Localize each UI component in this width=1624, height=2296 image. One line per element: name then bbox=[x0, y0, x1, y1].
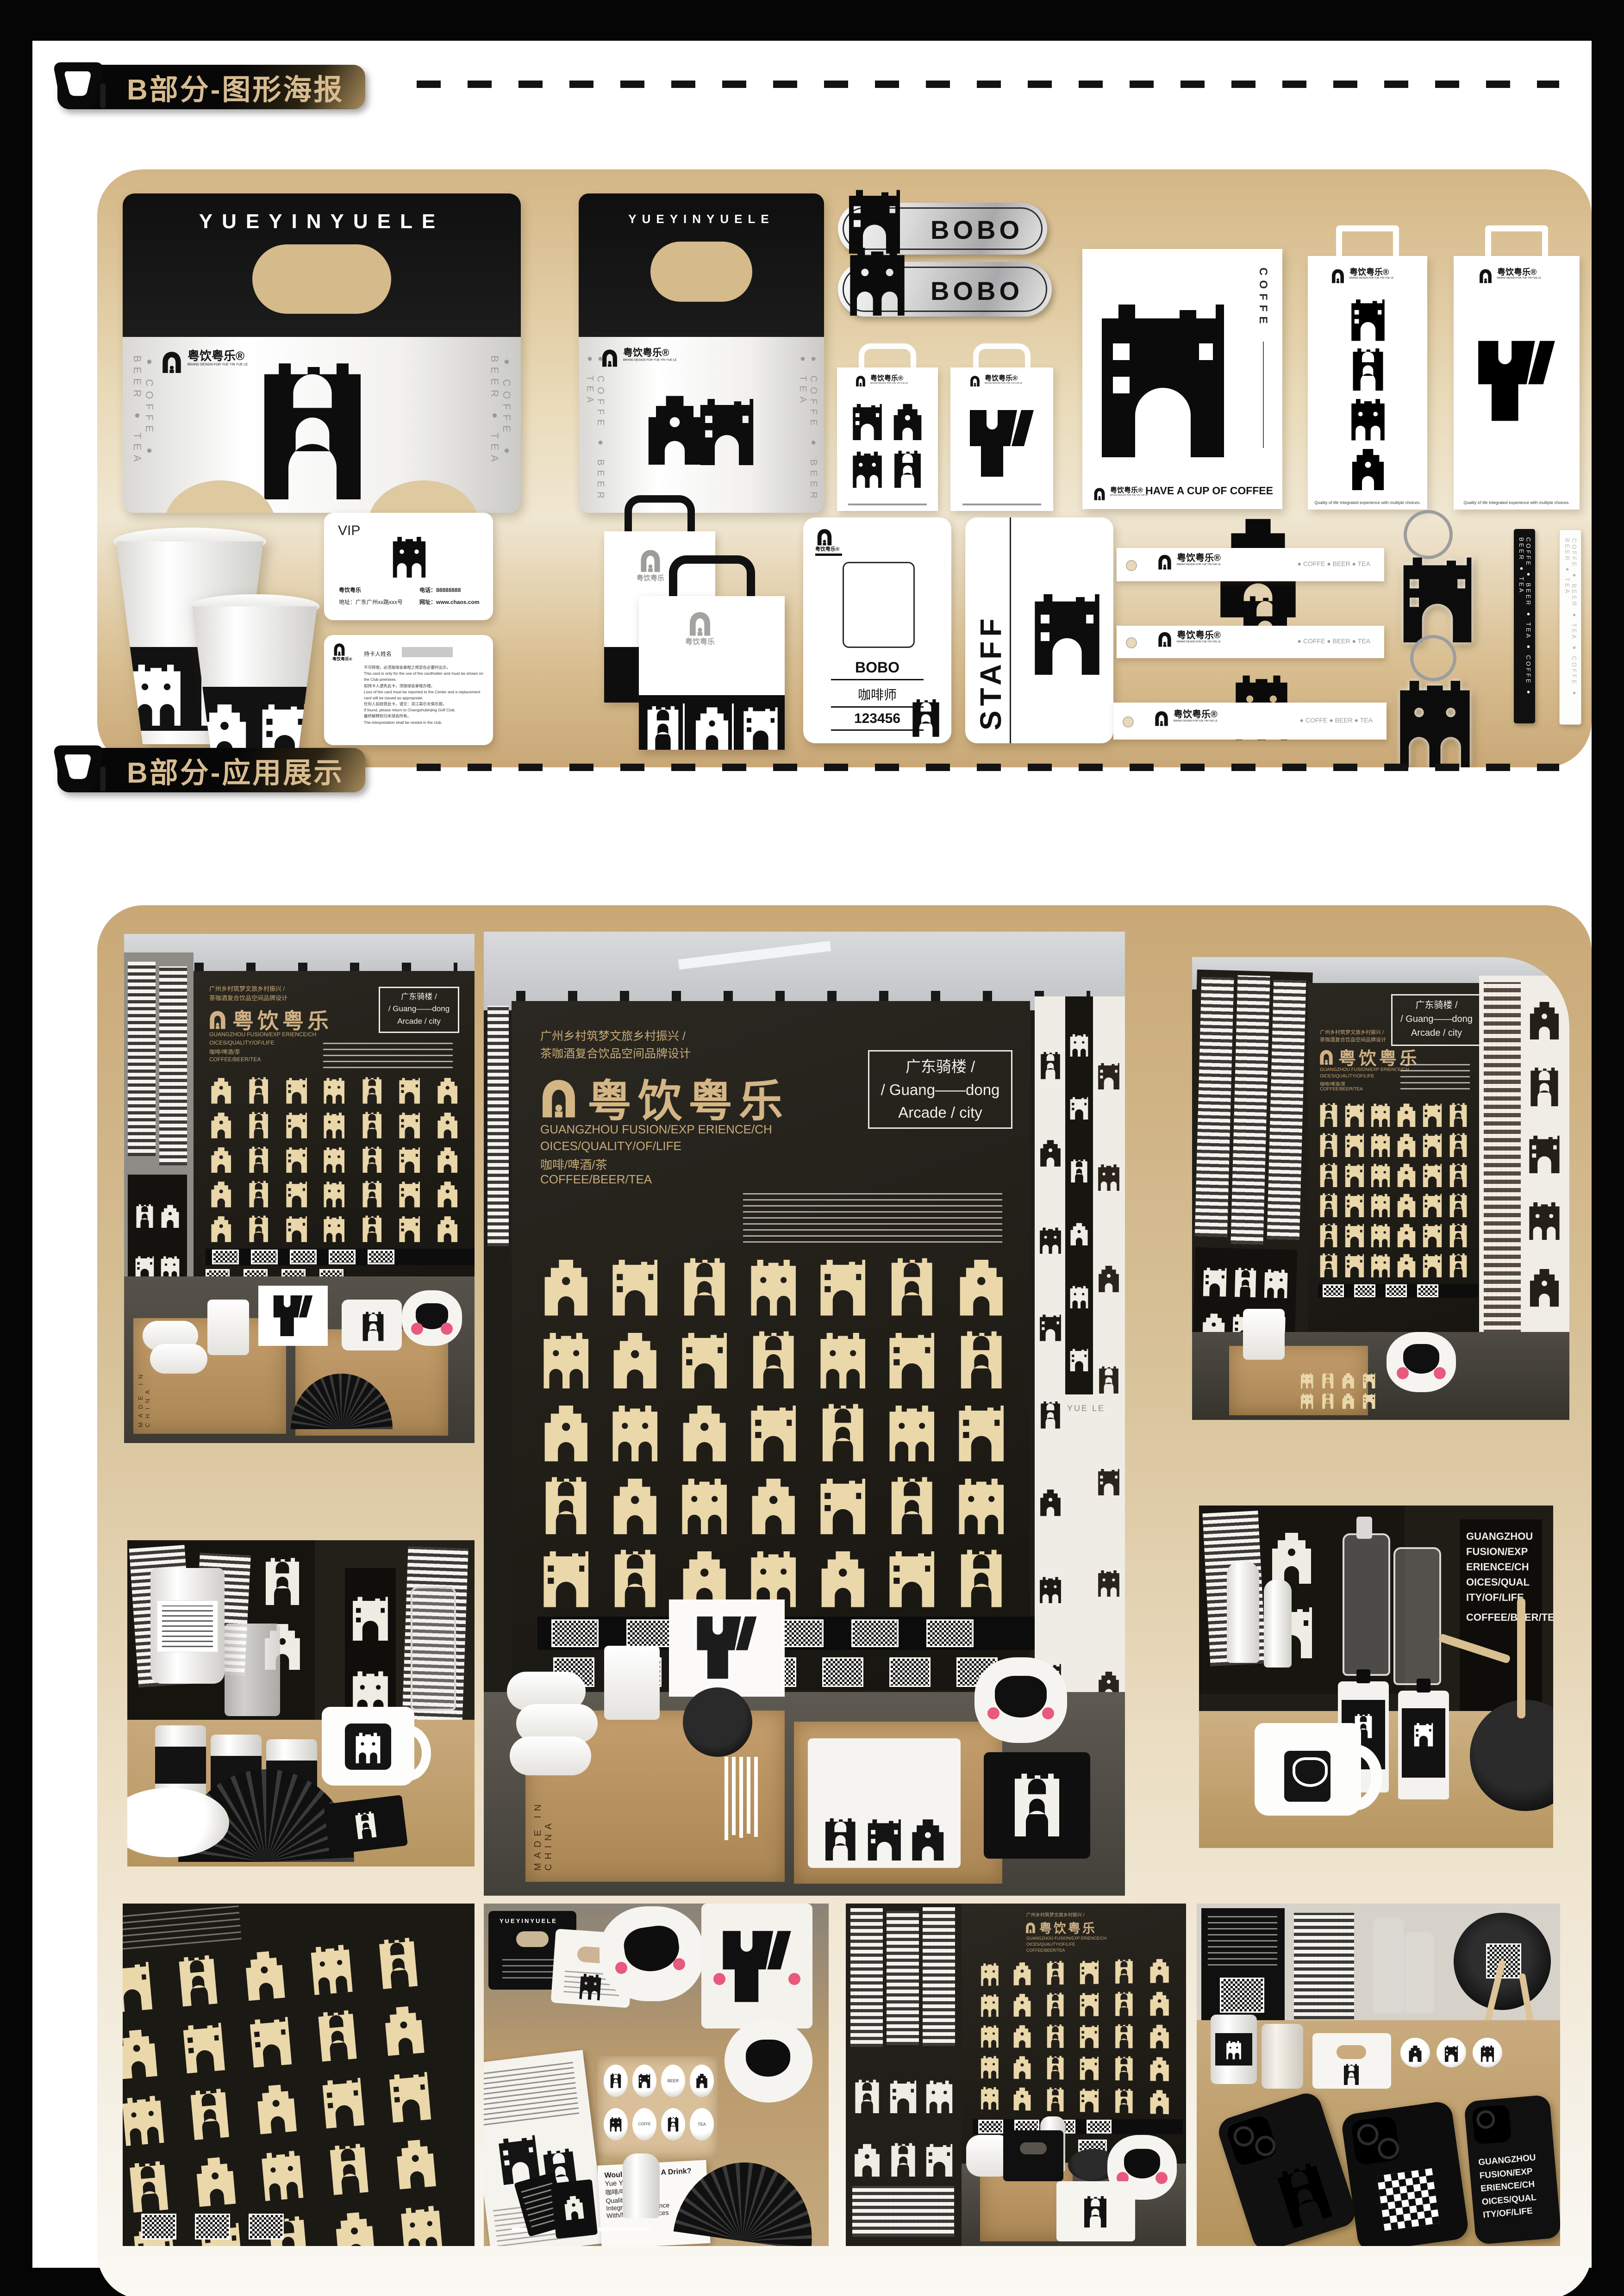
holder-name-field bbox=[402, 647, 453, 657]
building-icon bbox=[350, 1648, 390, 1715]
white-cup bbox=[1211, 2015, 1257, 2084]
photo-merch-totes: YUEYINYUELE bbox=[484, 1904, 829, 2246]
building-icon bbox=[1370, 1132, 1391, 1157]
building-icon bbox=[1097, 1612, 1121, 1698]
building-icon bbox=[123, 1957, 159, 2013]
cup-band bbox=[155, 1747, 206, 1784]
qr-tile bbox=[978, 2120, 1003, 2134]
wall-sub-en: COFFEE/BEER/TEA bbox=[540, 1172, 652, 1187]
wall-sub-en: OICES/QUALITY/OF/LIFE bbox=[1320, 1074, 1374, 1079]
qr-banner-strip bbox=[537, 1617, 1037, 1650]
building-icon bbox=[356, 1145, 387, 1173]
pen-row bbox=[725, 1757, 785, 1840]
building-icon bbox=[851, 448, 884, 488]
logo-sub: BRAND DESIGN FOR YUE YIN YUE LE bbox=[985, 382, 1022, 385]
building-icon bbox=[206, 1076, 237, 1104]
logo-cn: 粤饮粤乐® bbox=[870, 375, 920, 382]
building-icon bbox=[676, 1255, 733, 1316]
building-icon bbox=[1042, 1959, 1069, 1985]
building-icon bbox=[924, 2120, 954, 2177]
keychain-building-icon bbox=[1380, 673, 1489, 767]
carrier-brand: YUEYINYUELE bbox=[500, 1917, 557, 1924]
wall-sub-cn: 茶咖酒复合饮品空间品牌设计 bbox=[1320, 1036, 1386, 1043]
building-icon bbox=[160, 1232, 181, 1279]
box-text: MADE IN CHINA bbox=[533, 1773, 554, 1871]
building-icon bbox=[281, 1110, 312, 1139]
qr-tile bbox=[251, 1250, 278, 1264]
building-icon bbox=[1318, 1222, 1339, 1247]
building-icon bbox=[676, 1328, 733, 1389]
building-icon bbox=[1030, 587, 1104, 675]
poster-vertical-word: COFFE bbox=[1256, 268, 1269, 337]
building-icon bbox=[1097, 1410, 1121, 1495]
wall-sub-cn: 广州乡村筑梦文旅乡村振兴 / bbox=[1320, 1028, 1384, 1036]
vip-card-back: 粤饮粤乐® 持卡人姓名 不可转借，必须按球会章程之规定在必要时出示。 This … bbox=[324, 635, 493, 745]
plush-star-pillow bbox=[600, 1906, 704, 2001]
logo-sub: BRAND DESIGN FOR YUE YIN YUE LE bbox=[1349, 277, 1393, 279]
banner-building-column bbox=[1527, 985, 1562, 1374]
building-icon bbox=[745, 1546, 802, 1607]
building-icon bbox=[1448, 1192, 1469, 1217]
building-icon bbox=[1097, 1105, 1121, 1191]
qr-tile bbox=[195, 2214, 230, 2240]
gift-bag-buildings: 粤饮粤乐® BRAND DESIGN FOR YUE YIN YUE LE bbox=[837, 367, 938, 511]
photo-merch-cups-fan bbox=[127, 1540, 475, 1867]
tag-line: / Guang——dong bbox=[869, 1078, 1011, 1101]
building-icon bbox=[814, 1255, 871, 1316]
term-line: 不可转借，必须按球会章程之规定在必要时出示。 bbox=[364, 665, 485, 671]
building-icon bbox=[1319, 1372, 1337, 1388]
building-icon bbox=[243, 1110, 274, 1139]
qr-tile bbox=[212, 1250, 239, 1264]
brand-logo: 粤饮粤乐® BRAND DESIGN FOR YUE YIN YUE LE bbox=[1478, 268, 1555, 284]
building-icon bbox=[977, 2023, 1003, 2048]
camera-lens bbox=[1376, 2136, 1400, 2160]
arch-logo-icon bbox=[1153, 710, 1170, 727]
y-monogram-icon bbox=[967, 402, 1037, 485]
building-icon bbox=[1262, 1257, 1289, 1298]
wood-tile-stack bbox=[1299, 1372, 1377, 1409]
building-icon bbox=[1075, 1958, 1103, 1984]
qr-tile bbox=[926, 1619, 974, 1647]
building-icon bbox=[360, 1307, 386, 1344]
building-icon bbox=[667, 2114, 680, 2134]
building-icon bbox=[1340, 296, 1396, 341]
plush-y-pillow bbox=[701, 1904, 812, 2028]
building-icon bbox=[883, 1546, 940, 1607]
building-icon bbox=[1075, 2086, 1103, 2112]
arcade-tagbox: 广东骑楼 / / Guang——dong Arcade / city bbox=[868, 1050, 1012, 1129]
vip-card-front: VIP 粤饮粤乐 地址：广东广州xx路xxx号 电话：88888888 网址：w… bbox=[324, 513, 493, 620]
coaster-row: BEER bbox=[604, 2065, 714, 2097]
wall-sub-en: GUANGZHOU FUSION/EXP ERIENCE/CH bbox=[209, 1031, 316, 1038]
building-icon bbox=[281, 1214, 312, 1242]
building-icon bbox=[953, 1474, 1010, 1535]
mug bbox=[1255, 1723, 1361, 1816]
hanging-banners: YUE LE bbox=[1035, 996, 1125, 1718]
term-line: 如持卡人遗失此卡，须按球会章程办理。 bbox=[364, 683, 485, 689]
arch-logo-icon bbox=[1156, 631, 1173, 647]
building-art-icon bbox=[1093, 281, 1232, 467]
arch-logo-icon bbox=[687, 610, 713, 637]
building-icon bbox=[883, 1328, 940, 1389]
wood-building-grid bbox=[1318, 1101, 1469, 1277]
plush-pillow bbox=[974, 1657, 1067, 1743]
plush-face bbox=[1403, 1344, 1439, 1374]
brand-logo: 粤饮粤乐® BRAND DESIGN FOR YUE YIN YUE LE bbox=[1153, 710, 1232, 727]
building-tag-icon bbox=[843, 242, 912, 316]
plush-round-pillow bbox=[725, 2019, 812, 2103]
candle bbox=[1227, 1561, 1259, 1663]
black-cup-carrier bbox=[1003, 2130, 1063, 2181]
building-icon bbox=[315, 2073, 371, 2129]
camera-module bbox=[1350, 2116, 1400, 2165]
cup-carrier-small: YUEYINYUELE 粤饮粤乐® BRAND DESIGN FOR YUE Y… bbox=[579, 193, 824, 513]
mug-print bbox=[1284, 1751, 1330, 1802]
building-icon bbox=[953, 1328, 1010, 1389]
paper-cup-small bbox=[190, 587, 319, 767]
building-icon bbox=[866, 1782, 903, 1860]
carrier-body: 粤饮粤乐® BRAND DESIGN FOR YUE YIN YUE LE ● … bbox=[579, 337, 824, 513]
building-icon bbox=[281, 1076, 312, 1104]
building-icon bbox=[394, 1076, 425, 1104]
building-icon bbox=[537, 1328, 594, 1389]
arch-logo-icon bbox=[1318, 1049, 1335, 1065]
logo-cn: 粤饮粤乐® bbox=[332, 657, 352, 661]
wall-sub-en: GUANGZHOU FUSION/EXP ERIENCE/CH bbox=[1320, 1067, 1409, 1072]
wood-building-grid bbox=[977, 1956, 1174, 2114]
qr-tile bbox=[141, 2214, 176, 2240]
building-icon bbox=[606, 1255, 663, 1316]
camera-lens bbox=[1356, 2122, 1380, 2147]
building-icon bbox=[1268, 1519, 1315, 1584]
white-lamp bbox=[623, 2153, 660, 2218]
building-icon bbox=[319, 1145, 350, 1173]
term-line: 任何人如拾获此卡，请交：滨江高尔夫俱乐部。 bbox=[364, 701, 485, 707]
building-icon bbox=[1370, 1162, 1391, 1187]
building-icon bbox=[1370, 1222, 1391, 1247]
pen bbox=[747, 1757, 750, 1834]
building-icon bbox=[1145, 1956, 1174, 1983]
logo-sub: BRAND DESIGN FOR YUE YIN YUE LE bbox=[623, 358, 677, 361]
phone-case-text: GUANGZHOU FUSION/EXP ERIENCE/CH OICES/QU… bbox=[1464, 2095, 1560, 2245]
poster-strip bbox=[887, 1911, 919, 2045]
outline-building-column bbox=[1340, 296, 1396, 490]
building-icon bbox=[953, 1400, 1010, 1462]
building-icon bbox=[1344, 1132, 1365, 1157]
lanyard-strap-white: COFFE ● BEER ● TEA ● COFFE ● BEER ● TEA bbox=[1559, 529, 1581, 725]
building-icon bbox=[187, 2151, 244, 2208]
banner-building-column bbox=[1097, 1004, 1121, 1698]
building-icon bbox=[123, 2091, 171, 2147]
logo-cn: 粤饮粤乐 bbox=[685, 639, 715, 647]
arch-logo-icon bbox=[1330, 268, 1346, 284]
arch-logo-icon bbox=[207, 1009, 228, 1030]
building-icon bbox=[692, 703, 734, 750]
building-icon bbox=[1396, 1222, 1417, 1247]
wristband: 粤饮粤乐® BRAND DESIGN FOR YUE YIN YUE LE ● … bbox=[1117, 548, 1384, 581]
tag-line: 广东骑楼 / bbox=[380, 991, 458, 1003]
building-icon bbox=[1042, 1991, 1069, 2016]
booth-wall: 广州乡村筑梦文旅乡村振兴 / 茶咖酒复合饮品空间品牌设计 粤饮粤乐 GUANGZ… bbox=[512, 1001, 1030, 1691]
wood-rod bbox=[1517, 1598, 1525, 1718]
case-text-block: GUANGZHOU FUSION/EXP ERIENCE/CH OICES/QU… bbox=[1478, 2152, 1541, 2222]
black-plate bbox=[683, 1687, 752, 1757]
photo-merch-phone-cases: GUANGZHOU FUSION/EXP ERIENCE/CH OICES/QU… bbox=[1197, 1904, 1560, 2246]
building-icon bbox=[676, 1474, 733, 1535]
tall-bag-outline-buildings: 粤饮粤乐® BRAND DESIGN FOR YUE YIN YUE LE Qu… bbox=[1308, 256, 1427, 510]
building-icon bbox=[356, 1110, 387, 1139]
wall-sub-en: COFFEE/BEER/TEA bbox=[1026, 1948, 1065, 1953]
label-bottle bbox=[1398, 1691, 1449, 1799]
building-icon bbox=[814, 1328, 871, 1389]
wall-sub-cn: 广州乡村筑梦文旅乡村振兴 / bbox=[540, 1027, 686, 1044]
plush-pillow bbox=[1387, 1332, 1456, 1392]
building-icon bbox=[1318, 1132, 1339, 1157]
banner-building-column bbox=[1069, 1010, 1089, 1371]
lanyard-slot-line bbox=[1010, 517, 1011, 743]
building-icon bbox=[243, 1076, 274, 1104]
terms-block: 不可转借，必须按球会章程之规定在必要时出示。 This card is only… bbox=[364, 665, 485, 726]
cup-stack bbox=[1243, 1309, 1285, 1360]
coaster-row bbox=[1400, 2038, 1502, 2067]
building-icon bbox=[1422, 1222, 1443, 1247]
brand-logo-gray: 粤饮粤乐 bbox=[637, 548, 664, 582]
carrier-side-text: ● COFFE ● BEER ● TEA bbox=[797, 354, 818, 506]
strap-text: COFFE ● BEER ● TEA ● COFFE ● BEER ● TEA bbox=[1518, 537, 1532, 715]
building-icon bbox=[381, 2067, 438, 2123]
qr-tile bbox=[626, 1619, 674, 1647]
building-icon bbox=[1448, 1252, 1469, 1277]
building-icon bbox=[1075, 1991, 1103, 2016]
staff-card: STAFF bbox=[965, 517, 1113, 743]
building-icon bbox=[319, 1214, 350, 1242]
vip-address: 地址：广东广州xx路xxx号 bbox=[339, 598, 403, 606]
cup-label bbox=[157, 1600, 218, 1652]
arch-logo-icon bbox=[969, 375, 981, 387]
rule-line bbox=[1263, 342, 1264, 448]
building-icon bbox=[1299, 1392, 1316, 1409]
building-icon bbox=[134, 1232, 155, 1279]
coaster-row: COFFE TEA bbox=[604, 2108, 714, 2140]
band-drinks: ● COFFE ● BEER ● TEA bbox=[1298, 637, 1370, 645]
banner-label: YUE LE bbox=[1067, 1404, 1105, 1413]
building-icon bbox=[1201, 1255, 1228, 1296]
building-icon bbox=[1344, 1162, 1365, 1187]
logo-cn: 粤饮粤乐 bbox=[637, 575, 664, 582]
carrier-handle-hole bbox=[252, 244, 391, 314]
building-icon bbox=[537, 1474, 594, 1535]
y-print-card bbox=[669, 1599, 785, 1697]
section-header-poster: B部分-图形海报 bbox=[57, 65, 365, 109]
wall-sub-en: OICES/QUALITY/OF/LIFE bbox=[209, 1039, 275, 1046]
building-icon bbox=[432, 1179, 463, 1207]
banner-building-column bbox=[1038, 1006, 1062, 1691]
camera-module bbox=[1225, 2114, 1279, 2167]
building-icon bbox=[1318, 1192, 1339, 1217]
keychain-building-icon bbox=[1384, 550, 1491, 642]
qr-tile bbox=[329, 1250, 356, 1264]
vip-web: 网址：www.chaos.com bbox=[419, 598, 480, 606]
term-line: The interpretation shall be vested in th… bbox=[364, 720, 485, 726]
qr-tile bbox=[1220, 1978, 1264, 2013]
qr-tile bbox=[1386, 1284, 1407, 1297]
building-icon bbox=[1527, 1052, 1562, 1106]
brand-logo: 粤饮粤乐® BRAND DESIGN FOR YUE YIN YUE LE bbox=[160, 350, 263, 374]
hang-tag-black bbox=[550, 2179, 598, 2239]
building-icon bbox=[1318, 1101, 1339, 1127]
building-icon bbox=[319, 1076, 350, 1104]
arch-logo-icon bbox=[1093, 487, 1106, 501]
building-icon bbox=[321, 2140, 377, 2196]
qr-tile bbox=[290, 1250, 317, 1264]
logo-sub: BRAND DESIGN FOR YUE YIN YUE LE bbox=[1177, 563, 1221, 566]
carrier-handle-hole bbox=[650, 242, 752, 302]
coaster-beer: BEER bbox=[661, 2065, 685, 2097]
tote-mini bbox=[342, 1300, 402, 1350]
building-icon bbox=[609, 2114, 622, 2134]
arch-logo-icon bbox=[160, 350, 184, 374]
poster-strip bbox=[128, 962, 156, 1156]
arcade-tagbox: 广东骑楼 / / Guang——dong Arcade / city bbox=[379, 987, 459, 1033]
qr-tile bbox=[851, 1619, 899, 1647]
building-icon bbox=[237, 1945, 293, 2002]
building-icon bbox=[356, 1179, 387, 1207]
pen bbox=[739, 1757, 743, 1838]
phone-case bbox=[1340, 2100, 1469, 2246]
building-icon bbox=[128, 657, 184, 728]
building-icon bbox=[1097, 1511, 1121, 1597]
bottle-cap bbox=[1356, 1669, 1370, 1683]
brand-logo: 粤饮粤乐® BRAND DESIGN FOR YUE YIN YUE LE bbox=[855, 375, 920, 387]
arch-logo-icon bbox=[1024, 1922, 1037, 1934]
poster-dark bbox=[345, 1568, 396, 1721]
brand-logo: 粤饮粤乐® bbox=[815, 528, 842, 556]
paragraph-lines bbox=[323, 1040, 453, 1068]
wall-sub-cn: 茶咖酒复合饮品空间品牌设计 bbox=[209, 993, 287, 1002]
building-icon bbox=[1480, 2042, 1495, 2064]
building-icon bbox=[1069, 1073, 1089, 1120]
poster-strip bbox=[1267, 980, 1306, 1240]
building-icon bbox=[243, 1179, 274, 1207]
building-icon bbox=[123, 2023, 165, 2080]
logo-cn: 粤饮粤乐® bbox=[985, 375, 1035, 382]
wall-sub-cn: 咖啡/啤酒/茶 bbox=[209, 1048, 240, 1056]
building-icon bbox=[745, 1328, 802, 1389]
vip-tel: 电话：88888888 bbox=[419, 586, 461, 594]
building-icon bbox=[243, 1214, 274, 1242]
poster-line: GUANGZHOU bbox=[1466, 1529, 1536, 1544]
building-icon bbox=[745, 1255, 802, 1316]
building-icon bbox=[1396, 1132, 1417, 1157]
building-icon bbox=[1422, 1252, 1443, 1277]
photo-booth-corner: 广州乡村筑梦文旅乡村振兴 / 粤饮粤乐 GUANGZHOU FUSION/EXP… bbox=[846, 1904, 1186, 2246]
arch-logo-icon bbox=[855, 375, 867, 387]
dashed-divider bbox=[417, 764, 1559, 771]
wall-sub-en: COFFEE/BEER/TEA bbox=[1320, 1087, 1363, 1092]
building-icon bbox=[1340, 1372, 1357, 1388]
building-icon bbox=[883, 1474, 940, 1535]
building-icon bbox=[387, 2134, 444, 2190]
brand-logo: 粤饮粤乐® BRAND DESIGN FOR YUE YIN YUE LE bbox=[600, 348, 690, 367]
building-icon bbox=[1340, 1392, 1357, 1409]
poster-strip bbox=[850, 1908, 883, 2047]
mockup-panel: YUEYINYUELE 粤饮粤乐® BRAND DESIGN FOR YUE Y… bbox=[97, 169, 1592, 767]
bag-tagline: Quality of life Integrated experience wi… bbox=[1461, 500, 1572, 505]
bobo-label: BOBO bbox=[931, 215, 1023, 245]
coffee-poster: COFFE 粤饮粤乐® BRAND DESIGN FOR YUE YIN YUE… bbox=[1082, 249, 1282, 509]
mug-handle bbox=[1328, 1744, 1382, 1811]
shopper-bag-front: 粤饮粤乐 bbox=[639, 596, 785, 750]
banner-dark bbox=[1065, 996, 1093, 1394]
print-card bbox=[258, 1286, 328, 1346]
brand-logo-gray: 粤饮粤乐 bbox=[685, 610, 715, 647]
carrier-side-text: ● COFFE ● BEER ● TEA bbox=[488, 355, 512, 504]
lanyard-strap-black: COFFE ● BEER ● TEA ● COFFE ● BEER ● TEA bbox=[1514, 529, 1535, 723]
arcade-tagbox: 广东骑楼 / / Guang——dong Arcade / city bbox=[1391, 994, 1482, 1046]
building-icon bbox=[1319, 1392, 1337, 1409]
building-icon bbox=[1145, 1989, 1174, 2016]
building-icon bbox=[1042, 2023, 1069, 2048]
tote-bag bbox=[808, 1738, 961, 1868]
building-print-icon bbox=[252, 351, 373, 504]
carrier-brand: YUEYINYUELE bbox=[123, 210, 521, 233]
building-icon bbox=[356, 1214, 387, 1242]
poster-dark bbox=[1201, 1908, 1285, 2024]
building-icon bbox=[891, 448, 924, 488]
coaster-tea: TEA bbox=[690, 2108, 714, 2140]
building-icon bbox=[394, 1145, 425, 1173]
building-icon bbox=[1344, 1252, 1365, 1277]
bottle-cap bbox=[1417, 1679, 1430, 1692]
tag-line: 广东骑楼 / bbox=[869, 1055, 1011, 1078]
box-text: MADE IN CHINA bbox=[137, 1363, 151, 1427]
building-icon bbox=[1225, 2037, 1242, 2062]
cup-stack bbox=[604, 1646, 660, 1720]
poster-strip bbox=[487, 1006, 509, 1246]
poster-strip bbox=[1195, 977, 1234, 1237]
wood-building-grid bbox=[206, 1076, 463, 1242]
wood-building-grid bbox=[537, 1255, 1010, 1607]
wall-title-row: 粤饮粤乐 bbox=[207, 1004, 332, 1035]
building-icon bbox=[248, 2078, 305, 2135]
building-icon bbox=[1299, 1372, 1316, 1388]
building-icon bbox=[356, 1076, 387, 1104]
building-icon bbox=[1422, 1162, 1443, 1187]
building-icon bbox=[1069, 1325, 1089, 1371]
dashed-divider bbox=[417, 81, 1559, 88]
hanging-banners bbox=[1479, 976, 1569, 1392]
building-icon bbox=[394, 1214, 425, 1242]
term-line: 最终解释权归本球会所有。 bbox=[364, 713, 485, 719]
section-header-display: B部分-应用展示 bbox=[57, 748, 365, 792]
carrier-handle-hole bbox=[516, 1931, 549, 1947]
building-icon bbox=[1318, 1162, 1339, 1187]
building-icon bbox=[206, 1145, 237, 1173]
tall-bag-outline-y: 粤饮粤乐® BRAND DESIGN FOR YUE YIN YUE LE Qu… bbox=[1454, 256, 1580, 510]
building-icon bbox=[370, 1934, 426, 1990]
poster-line: FUSION/EXP bbox=[1466, 1544, 1536, 1559]
staff-label: STAFF bbox=[974, 536, 1008, 730]
caption-line bbox=[848, 504, 927, 505]
bottle-neck bbox=[1356, 1517, 1372, 1539]
logo-cn: 粤饮粤乐® bbox=[1174, 710, 1232, 720]
cup-stack bbox=[207, 1300, 249, 1355]
coaster-coffe: COFFE bbox=[632, 2108, 656, 2140]
poster-strip bbox=[1230, 975, 1270, 1244]
plush-face bbox=[1124, 2149, 1160, 2178]
bobo-name-tag: BOBO bbox=[838, 262, 1052, 317]
